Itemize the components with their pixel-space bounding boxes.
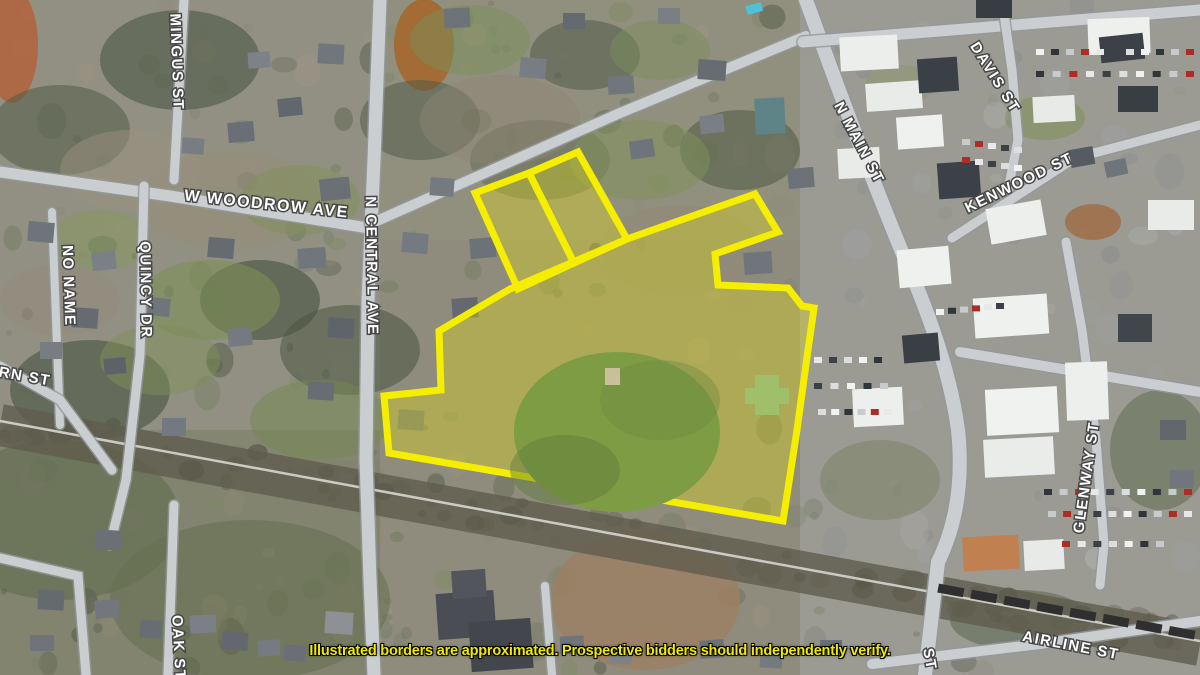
terrain-blob <box>78 62 97 82</box>
building <box>658 8 680 24</box>
building <box>327 317 354 339</box>
building <box>181 137 204 154</box>
parked-car <box>844 357 852 363</box>
parked-car <box>1184 511 1192 517</box>
building <box>297 247 326 269</box>
terrain-blob <box>822 526 847 556</box>
terrain-blob <box>3 226 22 251</box>
building <box>247 51 270 68</box>
building <box>1065 361 1109 420</box>
street-label-mingus-st: MINGUS ST <box>166 13 186 110</box>
map-decoration <box>420 75 580 165</box>
terrain-blob <box>843 229 872 260</box>
parked-car <box>1154 511 1162 517</box>
building <box>519 57 547 79</box>
map-decoration <box>1065 204 1121 240</box>
terrain-blob <box>814 606 825 614</box>
terrain-blob <box>844 288 863 304</box>
building <box>91 251 117 271</box>
building <box>451 569 487 599</box>
parked-car <box>858 409 866 415</box>
building <box>865 80 923 112</box>
building <box>308 381 335 400</box>
building <box>401 232 429 254</box>
building <box>985 386 1059 436</box>
building <box>162 418 186 436</box>
terrain-blob <box>271 57 297 73</box>
terrain-blob <box>1109 271 1133 300</box>
street-label-no-name: NO NAME <box>59 245 79 327</box>
parked-car <box>988 143 996 149</box>
parked-car <box>880 383 888 389</box>
parked-car <box>1062 541 1070 547</box>
parked-car <box>1169 511 1177 517</box>
terrain-blob <box>988 94 998 107</box>
building <box>629 138 655 159</box>
terrain-blob <box>401 627 412 639</box>
building <box>697 59 726 81</box>
terrain-blob <box>1101 246 1119 264</box>
parked-car <box>1156 541 1164 547</box>
terrain-blob <box>752 11 771 28</box>
terrain-blob <box>464 260 481 280</box>
terrain-blob <box>1155 153 1184 189</box>
parked-car <box>1086 71 1094 77</box>
terrain-blob <box>379 280 399 292</box>
building <box>937 161 981 200</box>
building <box>896 114 944 149</box>
parked-car <box>1048 511 1056 517</box>
disclaimer-text: Illustrated borders are approximated. Pr… <box>0 643 1200 659</box>
building <box>1032 95 1075 123</box>
parked-car <box>884 409 892 415</box>
building <box>754 97 786 135</box>
map-decoration <box>610 20 710 80</box>
building <box>962 535 1020 572</box>
terrain-blob <box>223 490 244 515</box>
parked-car <box>1111 49 1119 55</box>
building <box>40 342 62 359</box>
terrain-blob <box>294 54 320 88</box>
building <box>1023 539 1065 571</box>
building <box>743 251 772 275</box>
terrain-blob <box>786 505 806 528</box>
building <box>227 121 255 143</box>
parked-car <box>1066 49 1074 55</box>
building <box>839 35 899 72</box>
parked-car <box>1093 541 1101 547</box>
parked-car <box>1096 49 1104 55</box>
terrain-blob <box>328 238 347 250</box>
terrain-blob <box>488 0 495 6</box>
building <box>319 176 351 201</box>
parked-car <box>1186 49 1194 55</box>
building <box>976 0 1012 18</box>
parked-car <box>1036 71 1044 77</box>
parked-car <box>1044 489 1052 495</box>
parked-car <box>996 303 1004 309</box>
terrain-blob <box>1174 87 1186 94</box>
parked-car <box>936 309 944 315</box>
building <box>563 13 585 29</box>
parked-car <box>1168 489 1176 495</box>
parked-car <box>1001 163 1009 169</box>
building <box>1099 33 1145 63</box>
parked-car <box>1126 49 1134 55</box>
parked-car <box>1136 71 1144 77</box>
parked-car <box>1119 71 1127 77</box>
parked-car <box>1093 511 1101 517</box>
parked-car <box>975 159 983 165</box>
parked-car <box>1169 71 1177 77</box>
terrain-blob <box>608 2 633 22</box>
parked-car <box>1122 489 1130 495</box>
parked-car <box>1140 541 1148 547</box>
street-label-n-central-ave: N CENTRAL AVE <box>362 196 381 336</box>
parked-car <box>1014 147 1022 153</box>
building <box>317 43 344 64</box>
building <box>852 387 904 428</box>
street-label-quincy-dr: QUINCY DR <box>136 241 155 339</box>
building <box>699 114 725 134</box>
building <box>973 293 1050 338</box>
terrain-blob <box>912 173 932 194</box>
parked-car <box>1153 71 1161 77</box>
building <box>1118 314 1152 342</box>
building <box>983 436 1055 478</box>
parked-car <box>1081 49 1089 55</box>
parked-car <box>960 307 968 313</box>
parked-car <box>1053 71 1061 77</box>
parked-car <box>829 357 837 363</box>
satellite-map: MINGUS STW WOODROW AVEN CENTRAL AVENO NA… <box>0 0 1200 675</box>
building <box>37 589 64 610</box>
building <box>1148 200 1194 230</box>
parked-car <box>1139 511 1147 517</box>
aerial-map-image: MINGUS STW WOODROW AVEN CENTRAL AVENO NA… <box>0 0 1200 675</box>
map-decoration <box>745 388 789 404</box>
parked-car <box>972 305 980 311</box>
parked-car <box>1069 71 1077 77</box>
building <box>902 332 940 363</box>
parked-car <box>1109 541 1117 547</box>
parked-car <box>1125 541 1133 547</box>
parked-car <box>962 139 970 145</box>
parked-car <box>1108 511 1116 517</box>
building <box>429 177 454 197</box>
parked-car <box>1078 541 1086 547</box>
parked-car <box>1036 49 1044 55</box>
building <box>94 529 121 551</box>
parked-car <box>871 409 879 415</box>
building <box>94 599 119 619</box>
building <box>227 327 252 347</box>
parked-car <box>818 409 826 415</box>
terrain-blob <box>752 605 770 628</box>
terrain-blob <box>206 499 221 509</box>
parked-car <box>1186 71 1194 77</box>
parked-car <box>1014 165 1022 171</box>
parked-car <box>1141 49 1149 55</box>
parked-car <box>831 409 839 415</box>
parked-car <box>984 304 992 310</box>
parked-car <box>844 409 852 415</box>
building <box>896 246 951 288</box>
parked-car <box>1103 71 1111 77</box>
parked-car <box>1060 489 1068 495</box>
parked-car <box>814 383 822 389</box>
parked-car <box>1156 49 1164 55</box>
parked-car <box>1063 511 1071 517</box>
terrain-blob <box>907 400 923 412</box>
building <box>277 97 303 117</box>
shed <box>605 368 620 385</box>
parked-car <box>1184 489 1192 495</box>
parked-car <box>864 383 872 389</box>
parked-car <box>1001 145 1009 151</box>
terrain-blob <box>390 532 404 542</box>
terrain-blob <box>1171 541 1200 572</box>
parked-car <box>962 157 970 163</box>
building <box>139 619 162 639</box>
building <box>207 237 235 259</box>
parked-car <box>859 357 867 363</box>
terrain-blob <box>1034 490 1042 501</box>
pond-shadow <box>510 435 620 505</box>
building <box>27 221 55 243</box>
parked-car <box>814 357 822 363</box>
building <box>1118 86 1158 112</box>
terrain-blob <box>31 658 42 670</box>
building <box>1170 470 1194 488</box>
building <box>103 357 126 375</box>
parked-car <box>975 141 983 147</box>
terrain-blob <box>708 92 720 102</box>
terrain-blob <box>938 207 953 219</box>
terrain-blob <box>804 499 823 518</box>
parked-car <box>988 161 996 167</box>
parked-car <box>1137 489 1145 495</box>
map-decoration <box>280 305 420 395</box>
terrain-blob <box>6 330 12 336</box>
parked-car <box>831 383 839 389</box>
building <box>607 75 634 95</box>
parked-car <box>1124 511 1132 517</box>
parked-car <box>847 383 855 389</box>
building <box>324 611 353 635</box>
terrain-blob <box>93 623 102 633</box>
terrain-blob <box>990 174 1002 183</box>
parked-car <box>1051 49 1059 55</box>
building <box>787 167 815 189</box>
parked-car <box>1171 49 1179 55</box>
terrain-blob <box>334 107 353 131</box>
building <box>917 57 959 94</box>
parked-car <box>1106 489 1114 495</box>
parked-car <box>874 357 882 363</box>
building <box>443 7 470 28</box>
building <box>1160 420 1186 440</box>
building <box>190 614 217 633</box>
terrain-blob <box>1095 313 1120 345</box>
parked-car <box>1153 489 1161 495</box>
map-decoration <box>820 440 940 520</box>
parked-car <box>948 308 956 314</box>
terrain-blob <box>913 631 920 636</box>
map-decoration <box>410 5 530 75</box>
